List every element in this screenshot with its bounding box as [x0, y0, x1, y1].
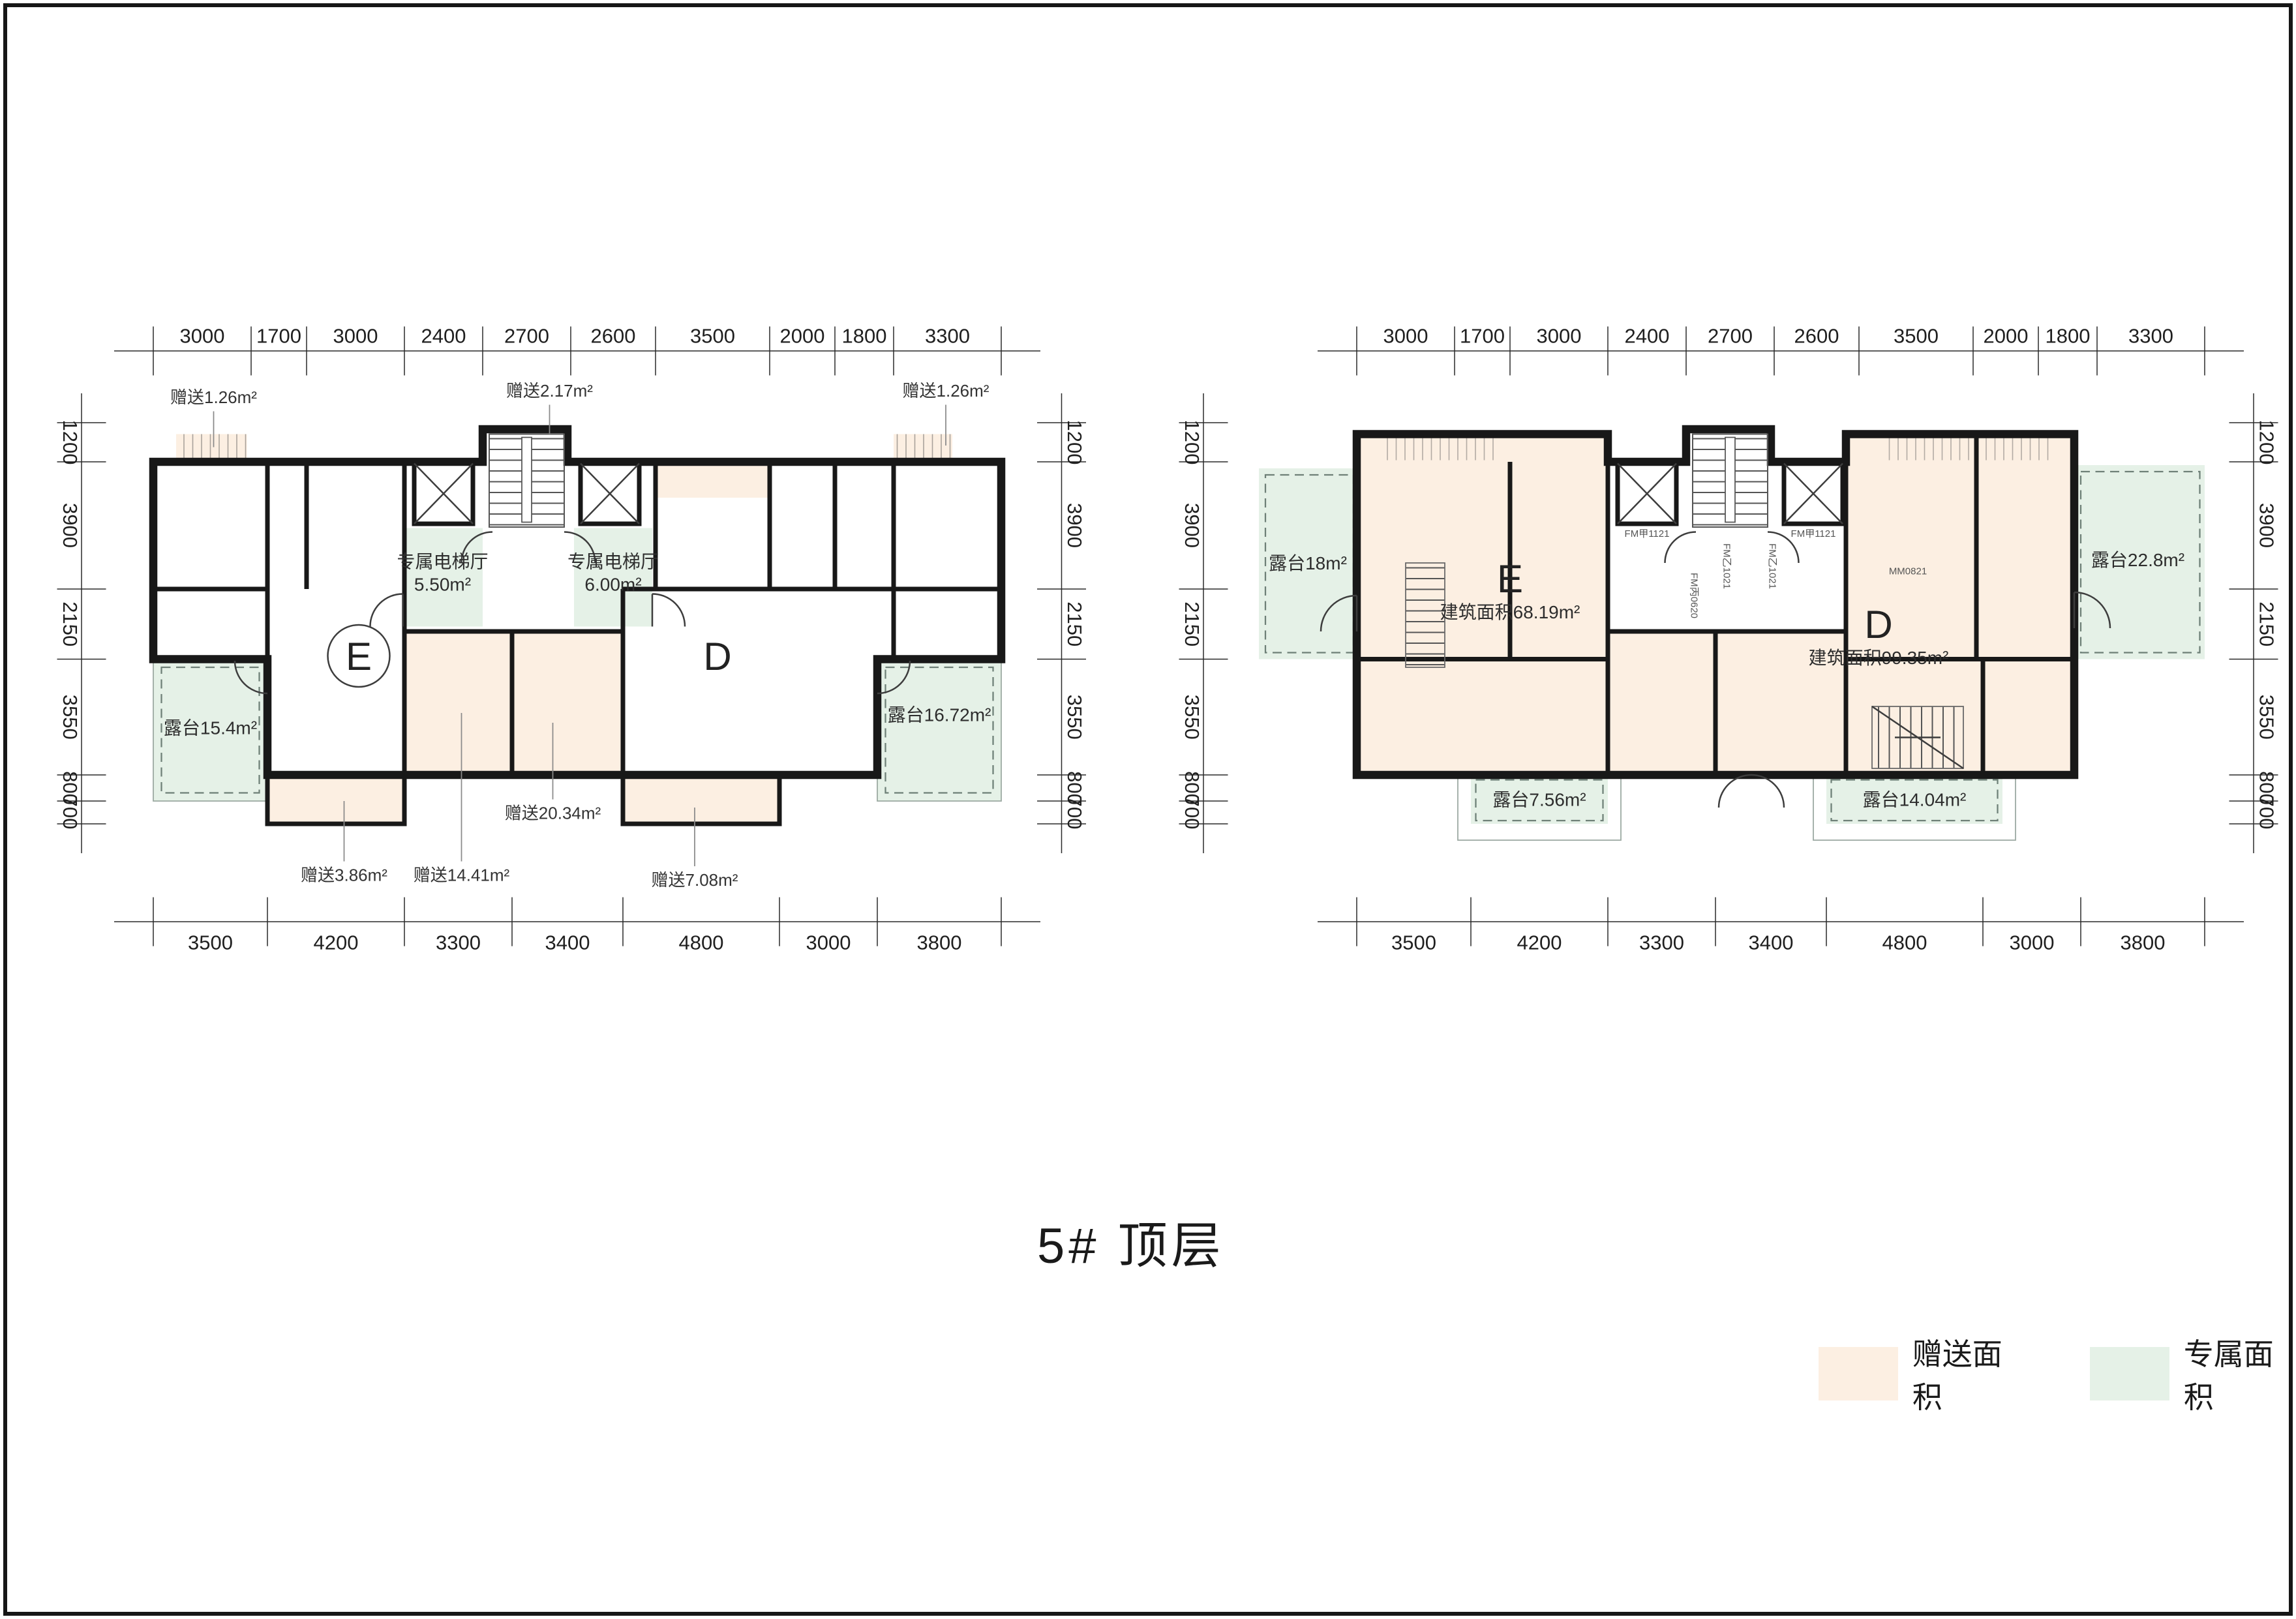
terrace-left-label: 露台15.4m²: [164, 718, 257, 738]
hall-e-name: 专属电梯厅: [397, 552, 488, 572]
dim: 3300: [436, 931, 481, 954]
dim: 3500: [188, 931, 233, 954]
dim: 2400: [1625, 325, 1670, 348]
dim: 2150: [1063, 601, 1086, 646]
dim: 4200: [314, 931, 359, 954]
dim: 1700: [1460, 325, 1505, 348]
dim: 3000: [1537, 325, 1582, 348]
dim: 3300: [2128, 325, 2173, 348]
dim: 1200: [59, 420, 82, 465]
dim: 3400: [1749, 931, 1794, 954]
page-title: 5# 顶层: [1037, 1205, 1225, 1277]
dim: 4800: [679, 931, 724, 954]
right-floor-plan: E 建筑面积68.19m² D 建筑面积99.35m² 露台18m² 露台22.…: [1141, 302, 2296, 967]
unit-e-area: 建筑面积68.19m²: [1440, 602, 1580, 622]
dim: 4800: [1882, 931, 1927, 954]
legend-exclusive-swatch: [2090, 1347, 2169, 1400]
door-label-fm-lobby-right: FM乙1021: [1767, 543, 1778, 589]
gift-strip-top: [656, 462, 770, 498]
terrace-right-label: 露台16.72m²: [888, 705, 991, 725]
hall-d-name: 专属电梯厅: [567, 552, 659, 572]
gift-bed1-label: 赠送14.41m²: [414, 866, 510, 885]
dim: 1200: [1063, 420, 1086, 465]
dim: 700: [1063, 796, 1086, 830]
dim: 1800: [2046, 325, 2091, 348]
gift-label-tr: 赠送1.26m²: [903, 381, 989, 401]
dim: 700: [2256, 796, 2278, 830]
gift-bay-left: [267, 775, 404, 824]
legend-exclusive-label: 专属面积: [2184, 1331, 2296, 1417]
dim: 1700: [256, 325, 301, 348]
balcony-hatch: [894, 434, 952, 462]
elevator-x-right: [1784, 464, 1843, 524]
elevator-x-left: [414, 464, 473, 524]
gift-bed2-label: 赠送20.34m²: [505, 804, 601, 823]
dim: 4200: [1517, 931, 1562, 954]
hall-d-area: 6.00m²: [584, 575, 641, 595]
dim: 3300: [925, 325, 970, 348]
dim: 2150: [59, 601, 82, 646]
door-label-fm-front: FM丙0620: [1689, 573, 1700, 618]
unit-e-gift-area2: [1608, 631, 1715, 775]
door-arc: [370, 594, 403, 627]
dim: 3000: [333, 325, 378, 348]
balcony-hatch: [176, 434, 247, 462]
dim: 2700: [1708, 325, 1753, 348]
unit-d-letter: D: [1864, 603, 1892, 646]
door-label-fm-elev-left: FM甲1121: [1625, 528, 1670, 539]
dim: 700: [1181, 796, 1203, 830]
left-plan-core: [414, 434, 639, 528]
door-label-fm-lobby-left: FM乙1021: [1721, 543, 1732, 589]
dim: 1800: [842, 325, 887, 348]
dim: 3500: [1391, 931, 1436, 954]
terrace-right: [877, 659, 1001, 802]
window-hatch: [1885, 436, 2055, 461]
legend-gift-swatch: [1819, 1347, 1898, 1400]
dim: 3500: [1894, 325, 1939, 348]
terrace-left-label: 露台18m²: [1269, 553, 1347, 573]
dim: 2600: [1794, 325, 1839, 348]
door-arc-entry: [1719, 775, 1784, 808]
window-hatch: [1386, 436, 1497, 461]
stair-rail: [522, 438, 532, 522]
unit-e-letter: E: [1497, 557, 1523, 601]
dim: 3000: [180, 325, 225, 348]
dim: 3800: [917, 931, 962, 954]
dim: 2700: [504, 325, 549, 348]
dim: 3550: [1063, 695, 1086, 740]
dim: 3900: [59, 503, 82, 548]
door-label-mm: MM0821: [1889, 566, 1927, 577]
dim: 3900: [2256, 503, 2278, 548]
dim: 2600: [591, 325, 636, 348]
dim: 3900: [1063, 503, 1086, 548]
dim: 3800: [2121, 931, 2166, 954]
dim: 2400: [421, 325, 466, 348]
terrace-br-label: 露台14.04m²: [1863, 790, 1967, 810]
stair-rail: [1725, 438, 1735, 522]
unit-d-area: 建筑面积99.35m²: [1809, 648, 1949, 668]
door-label-fm-elev-right: FM甲1121: [1791, 528, 1836, 539]
elevator-x-right: [581, 464, 639, 524]
terrace-bl-label: 露台7.56m²: [1492, 790, 1586, 810]
dim: 2000: [1984, 325, 2029, 348]
hall-e-area: 5.50m²: [414, 575, 471, 595]
gift-label-top: 赠送2.17m²: [506, 381, 593, 401]
legend-gift-label: 赠送面积: [1912, 1331, 2025, 1417]
dim: 3550: [59, 695, 82, 740]
legend: 赠送面积 专属面积: [1819, 1331, 2296, 1417]
door-arc: [652, 594, 685, 627]
dim: 3550: [2256, 695, 2278, 740]
unit-e-internal-stair: [1406, 563, 1445, 667]
dim: 2000: [780, 325, 825, 348]
dim: 3000: [806, 931, 851, 954]
unit-d-letter: D: [703, 635, 731, 678]
dim: 1200: [2256, 420, 2278, 465]
terrace-right-label: 露台22.8m²: [2091, 550, 2184, 570]
dim: 3300: [1639, 931, 1684, 954]
dim: 3500: [690, 325, 735, 348]
dim: 3400: [545, 931, 590, 954]
unit-e-letter: E: [346, 635, 372, 678]
dim: 3550: [1181, 695, 1203, 740]
dim: 2150: [2256, 601, 2278, 646]
dim: 3000: [1383, 325, 1428, 348]
dim: 3900: [1181, 503, 1203, 548]
elevator-x-left: [1618, 464, 1676, 524]
gift-bay-right: [623, 775, 779, 824]
dim: 700: [59, 796, 82, 830]
gift-label-tl: 赠送1.26m²: [170, 387, 257, 407]
dim: 1200: [1181, 420, 1203, 465]
gift-bay2-label: 赠送7.08m²: [652, 870, 738, 890]
gift-bay1-label: 赠送3.86m²: [301, 866, 387, 885]
left-floor-plan: 赠送1.26m² 赠送2.17m² 赠送1.26m² 专属电梯厅 5.50m² …: [10, 302, 1119, 967]
door-arc: [1665, 532, 1697, 564]
dim: 2150: [1181, 601, 1203, 646]
dim: 3000: [2010, 931, 2055, 954]
